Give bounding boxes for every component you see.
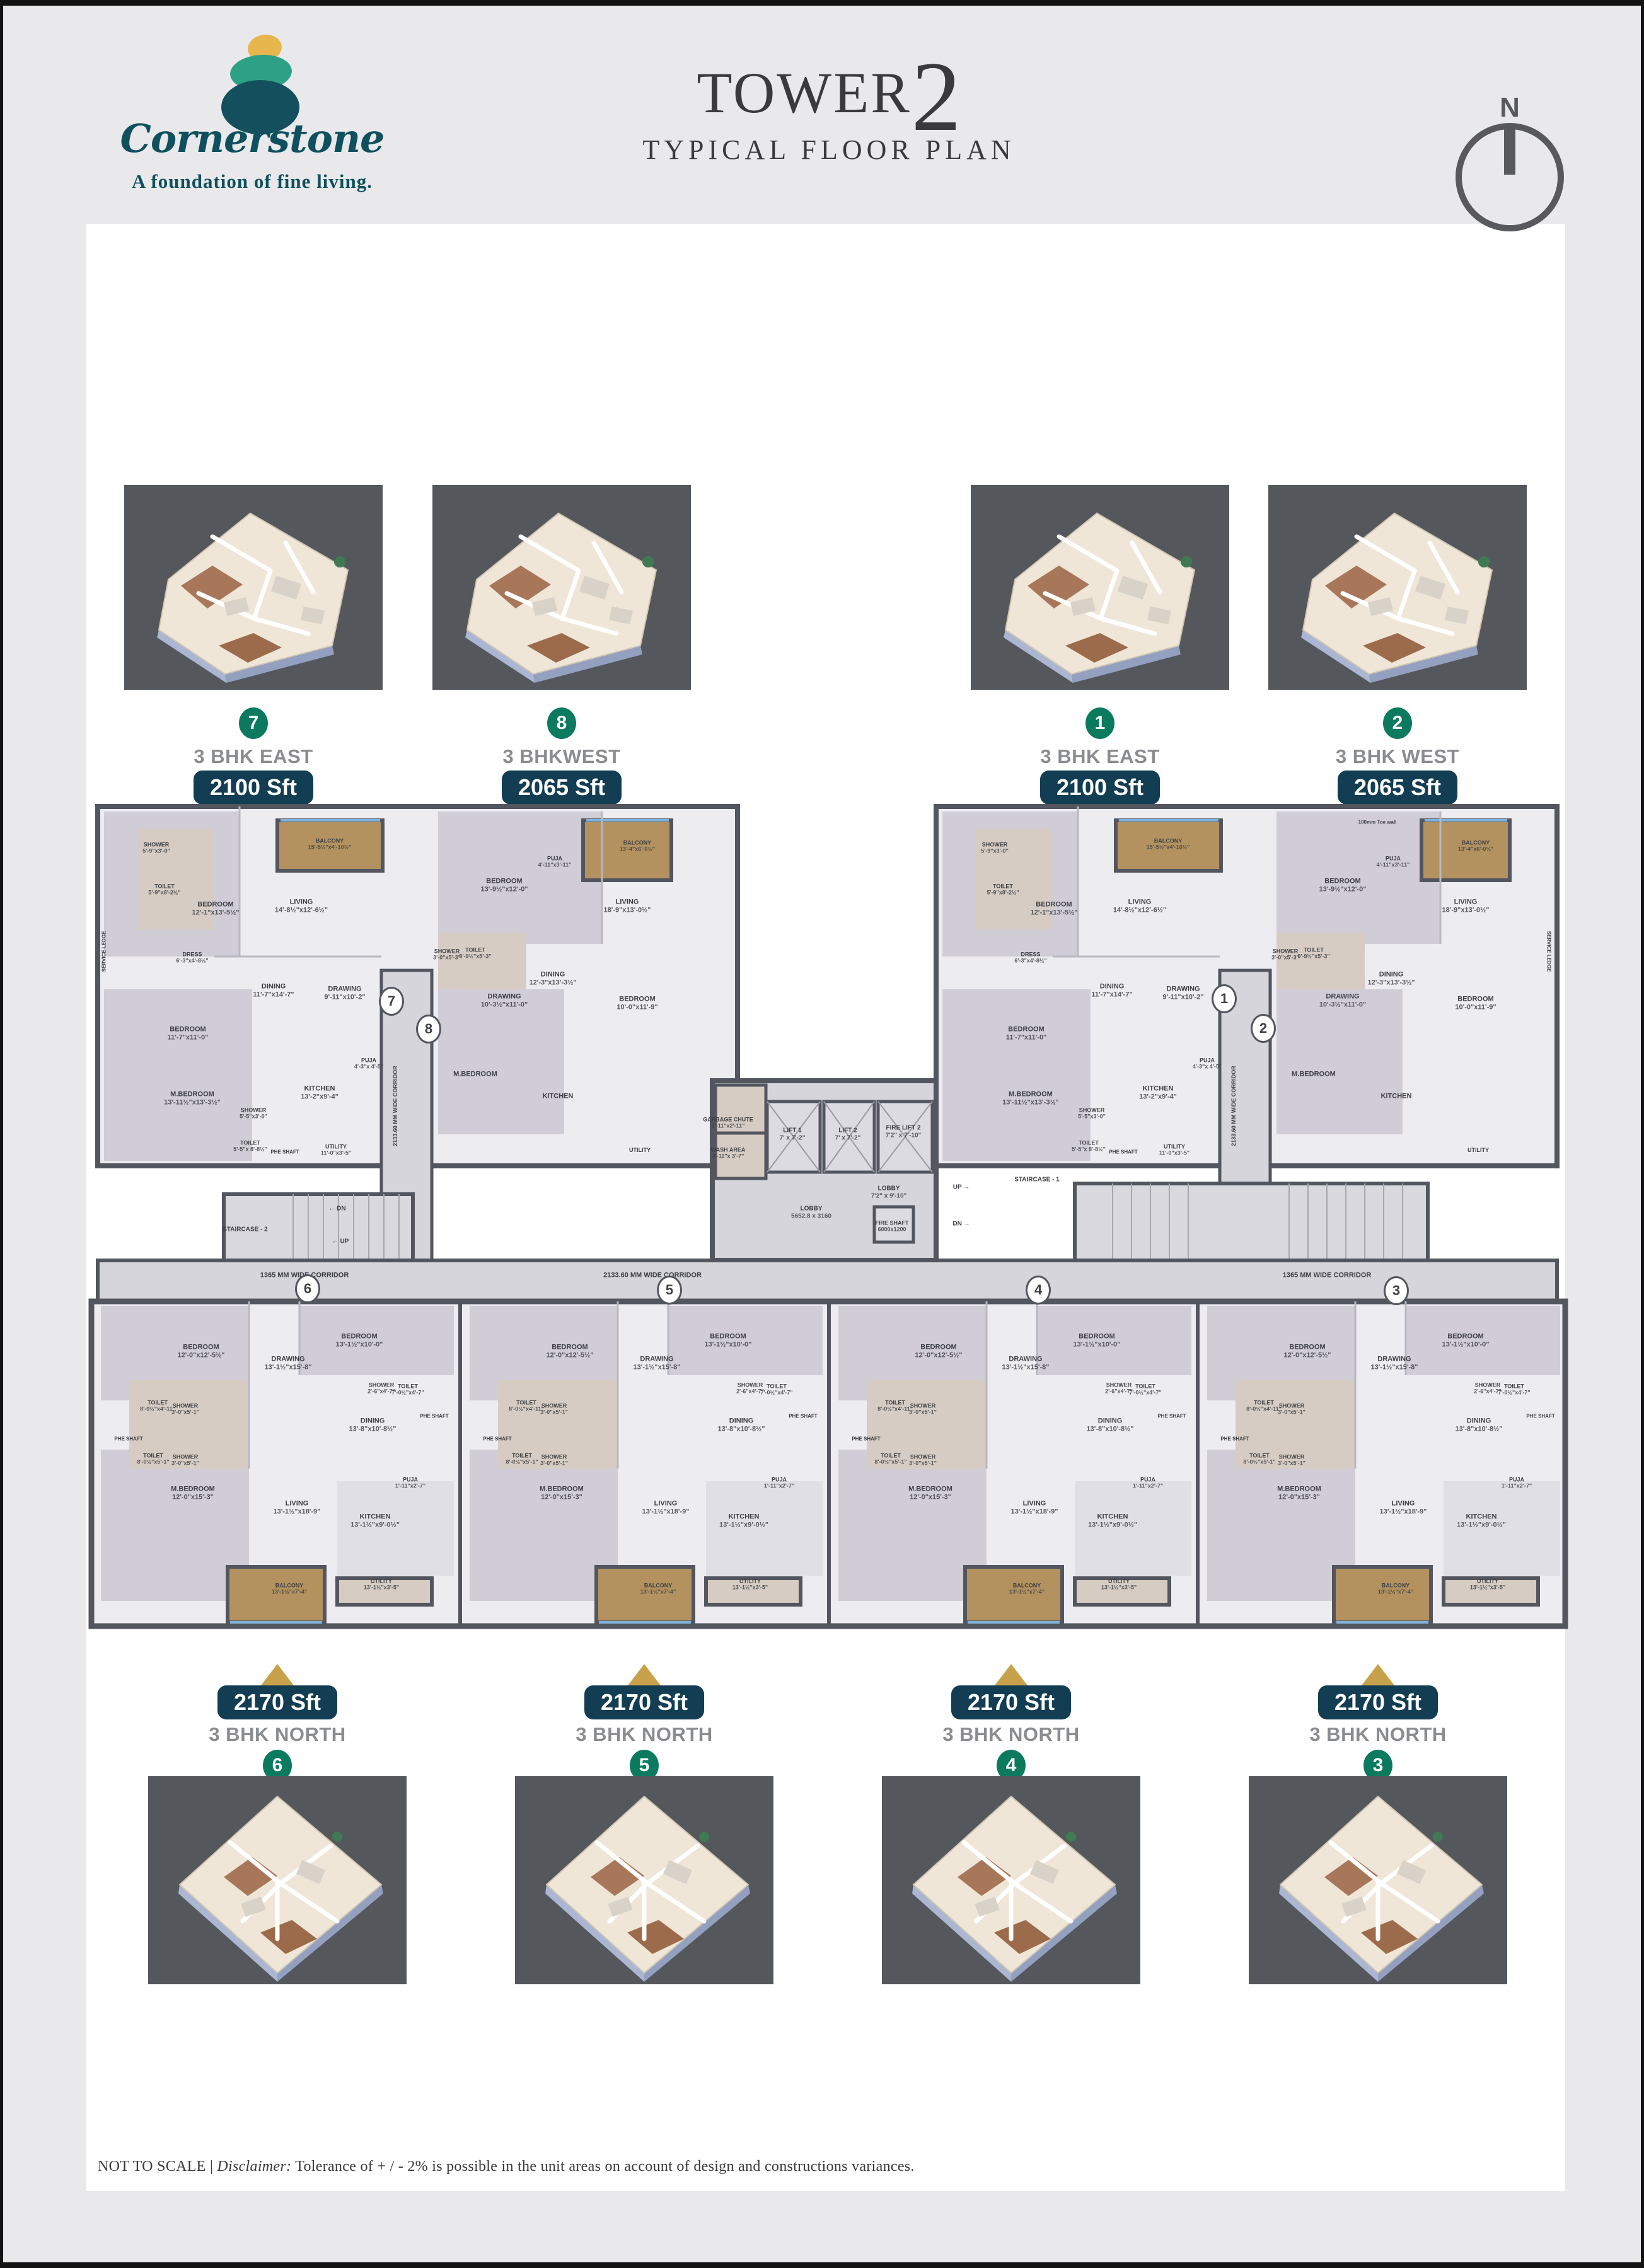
title-text: TOWER [697,61,911,125]
unit-type-label: 3 BHK NORTH [942,1723,1079,1746]
unit-number-badge: 2 [1383,707,1412,739]
logo-stones-icon [104,31,400,112]
unit-type-label: 3 BHK NORTH [209,1723,345,1746]
unit-number-badge: 1 [1085,707,1114,739]
unit-area-pill: 2170 Sft [1318,1685,1438,1719]
unit-number-badge: 7 [239,707,268,739]
floorplan-3d-thumbnail [1268,485,1527,690]
compass-needle [1504,125,1515,175]
brand-tagline: A foundation of fine living. [104,170,400,193]
unit-area-pill: 2100 Sft [1040,771,1160,805]
pointer-down-icon [1084,805,1116,826]
unit-type-label: 3 BHK EAST [194,745,313,768]
pointer-up-icon [628,1664,661,1685]
unit-number-badge: 8 [547,707,576,739]
stone-bottom-icon [221,80,299,134]
unit-area-pill: 2100 Sft [194,771,313,805]
unit-type-label: 3 BHK NORTH [576,1723,712,1746]
unit-area-pill: 2170 Sft [951,1685,1071,1719]
unit-card-2: 2 3 BHK WEST 2065 Sft [1268,485,1527,826]
unit-area-pill: 2170 Sft [217,1685,337,1719]
pointer-down-icon [237,805,270,826]
pointer-up-icon [995,1664,1027,1685]
unit-card-8: 8 3 BHKWEST 2065 Sft [432,485,691,826]
pointer-down-icon [1381,805,1414,826]
brochure-page: Cornerstone A foundation of fine living.… [0,0,1644,2268]
page-subtitle: TYPICAL FLOOR PLAN [608,134,1050,166]
pointer-down-icon [545,805,578,826]
floorplan-3d-thumbnail [1249,1776,1507,1984]
disclaimer-text: Tolerance of + / - 2% is possible in the… [295,2158,915,2175]
compass-dial [1456,123,1564,231]
unit-card-7: 7 3 BHK EAST 2100 Sft [124,485,383,826]
unit-card-3: 2170 Sft 3 BHK NORTH 3 [1249,1664,1507,1781]
floorplan-3d-thumbnail [148,1776,407,1984]
pointer-up-icon [1362,1664,1394,1685]
unit-type-label: 3 BHK NORTH [1309,1723,1446,1746]
disclaimer-label: Disclaimer: [217,2158,291,2175]
unit-type-label: 3 BHKWEST [502,745,620,768]
unit-area-pill: 2065 Sft [1338,771,1457,805]
compass-north-letter: N [1453,94,1566,122]
floorplan-3d-thumbnail [882,1776,1140,1984]
unit-card-6: 2170 Sft 3 BHK NORTH 6 [148,1664,407,1781]
unit-area-pill: 2170 Sft [584,1685,704,1719]
floorplan-3d-thumbnail [515,1776,773,1984]
unit-type-label: 3 BHK EAST [1040,745,1159,768]
unit-card-4: 2170 Sft 3 BHK NORTH 4 [882,1664,1140,1781]
pointer-up-icon [261,1664,294,1685]
unit-card-1: 1 3 BHK EAST 2100 Sft [971,485,1229,826]
footer-disclaimer: NOT TO SCALE | Disclaimer: Tolerance of … [98,2158,915,2175]
floorplan-3d-thumbnail [124,485,383,690]
page-title: TOWER2 TYPICAL FLOOR PLAN [608,64,1050,166]
footer-separator: | [210,2158,213,2175]
floorplan-3d-thumbnail [971,485,1229,690]
north-compass-icon: N [1453,94,1566,231]
unit-area-pill: 2065 Sft [502,771,622,805]
brand-logo: Cornerstone A foundation of fine living. [104,31,400,193]
floorplan-3d-thumbnail [432,485,691,690]
unit-type-label: 3 BHK WEST [1336,745,1459,768]
scale-note: NOT TO SCALE [98,2158,206,2175]
unit-card-5: 2170 Sft 3 BHK NORTH 5 [515,1664,773,1781]
